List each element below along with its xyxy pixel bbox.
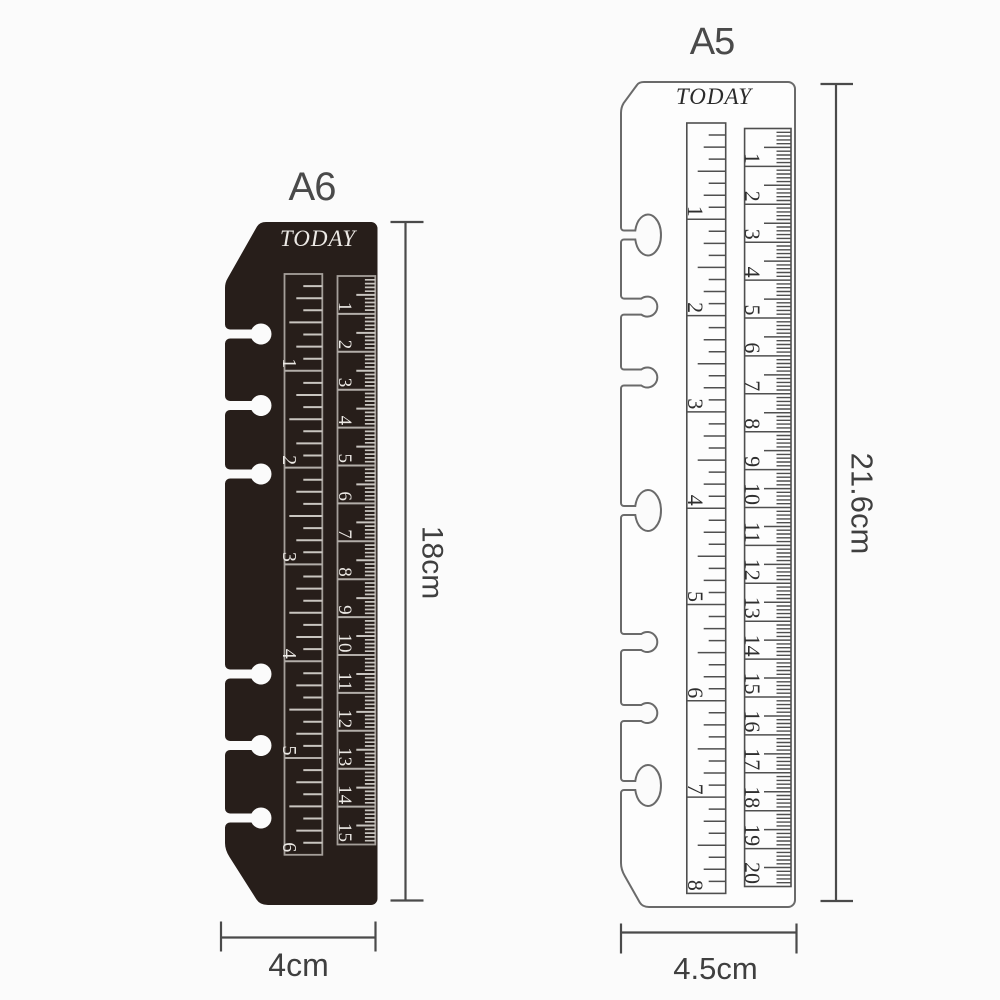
svg-text:3: 3 [278,552,300,562]
svg-text:13: 13 [740,597,765,619]
svg-text:5: 5 [683,591,708,602]
svg-text:4.5cm: 4.5cm [673,951,757,986]
svg-text:A5: A5 [690,21,734,63]
svg-text:3: 3 [683,398,708,409]
svg-text:8: 8 [334,567,355,577]
svg-text:4: 4 [740,267,765,278]
svg-text:3: 3 [334,378,355,388]
svg-text:6: 6 [740,342,765,353]
svg-text:6: 6 [683,687,708,698]
svg-text:6: 6 [334,491,355,501]
svg-text:13: 13 [334,747,355,766]
svg-text:8: 8 [683,880,708,891]
svg-text:15: 15 [334,823,355,842]
svg-text:5: 5 [334,454,355,464]
svg-text:19: 19 [740,824,765,846]
svg-text:1: 1 [334,302,355,312]
svg-text:10: 10 [334,634,355,653]
svg-text:10: 10 [740,483,765,505]
svg-text:17: 17 [740,748,765,770]
svg-text:14: 14 [334,785,355,805]
svg-text:4: 4 [334,416,355,426]
svg-text:A6: A6 [289,165,336,209]
svg-text:5: 5 [740,305,765,316]
svg-text:11: 11 [740,522,765,543]
svg-text:4cm: 4cm [268,947,328,983]
svg-text:14: 14 [740,635,765,657]
svg-text:TODAY: TODAY [280,226,357,251]
svg-text:5: 5 [278,746,300,756]
svg-text:12: 12 [740,559,765,581]
svg-text:3: 3 [740,229,765,240]
svg-text:2: 2 [683,302,708,313]
svg-text:18: 18 [740,786,765,808]
svg-text:2: 2 [278,455,300,465]
svg-text:2: 2 [740,191,765,202]
svg-text:9: 9 [740,456,765,467]
svg-text:8: 8 [740,418,765,429]
svg-text:1: 1 [278,358,300,368]
svg-text:TODAY: TODAY [676,84,753,109]
svg-text:4: 4 [683,495,708,506]
svg-text:6: 6 [278,842,300,852]
svg-text:7: 7 [740,380,765,391]
svg-text:21.6cm: 21.6cm [845,453,880,555]
svg-text:11: 11 [334,672,355,690]
svg-text:4: 4 [278,649,300,659]
svg-text:7: 7 [334,529,355,539]
svg-text:1: 1 [740,153,765,164]
svg-text:2: 2 [334,340,355,350]
svg-text:1: 1 [683,206,708,217]
svg-text:15: 15 [740,673,765,695]
svg-text:20: 20 [740,862,765,884]
svg-text:12: 12 [334,709,355,728]
svg-text:18cm: 18cm [416,526,449,599]
svg-text:16: 16 [740,710,765,732]
svg-text:9: 9 [334,605,355,615]
svg-text:7: 7 [683,784,708,795]
